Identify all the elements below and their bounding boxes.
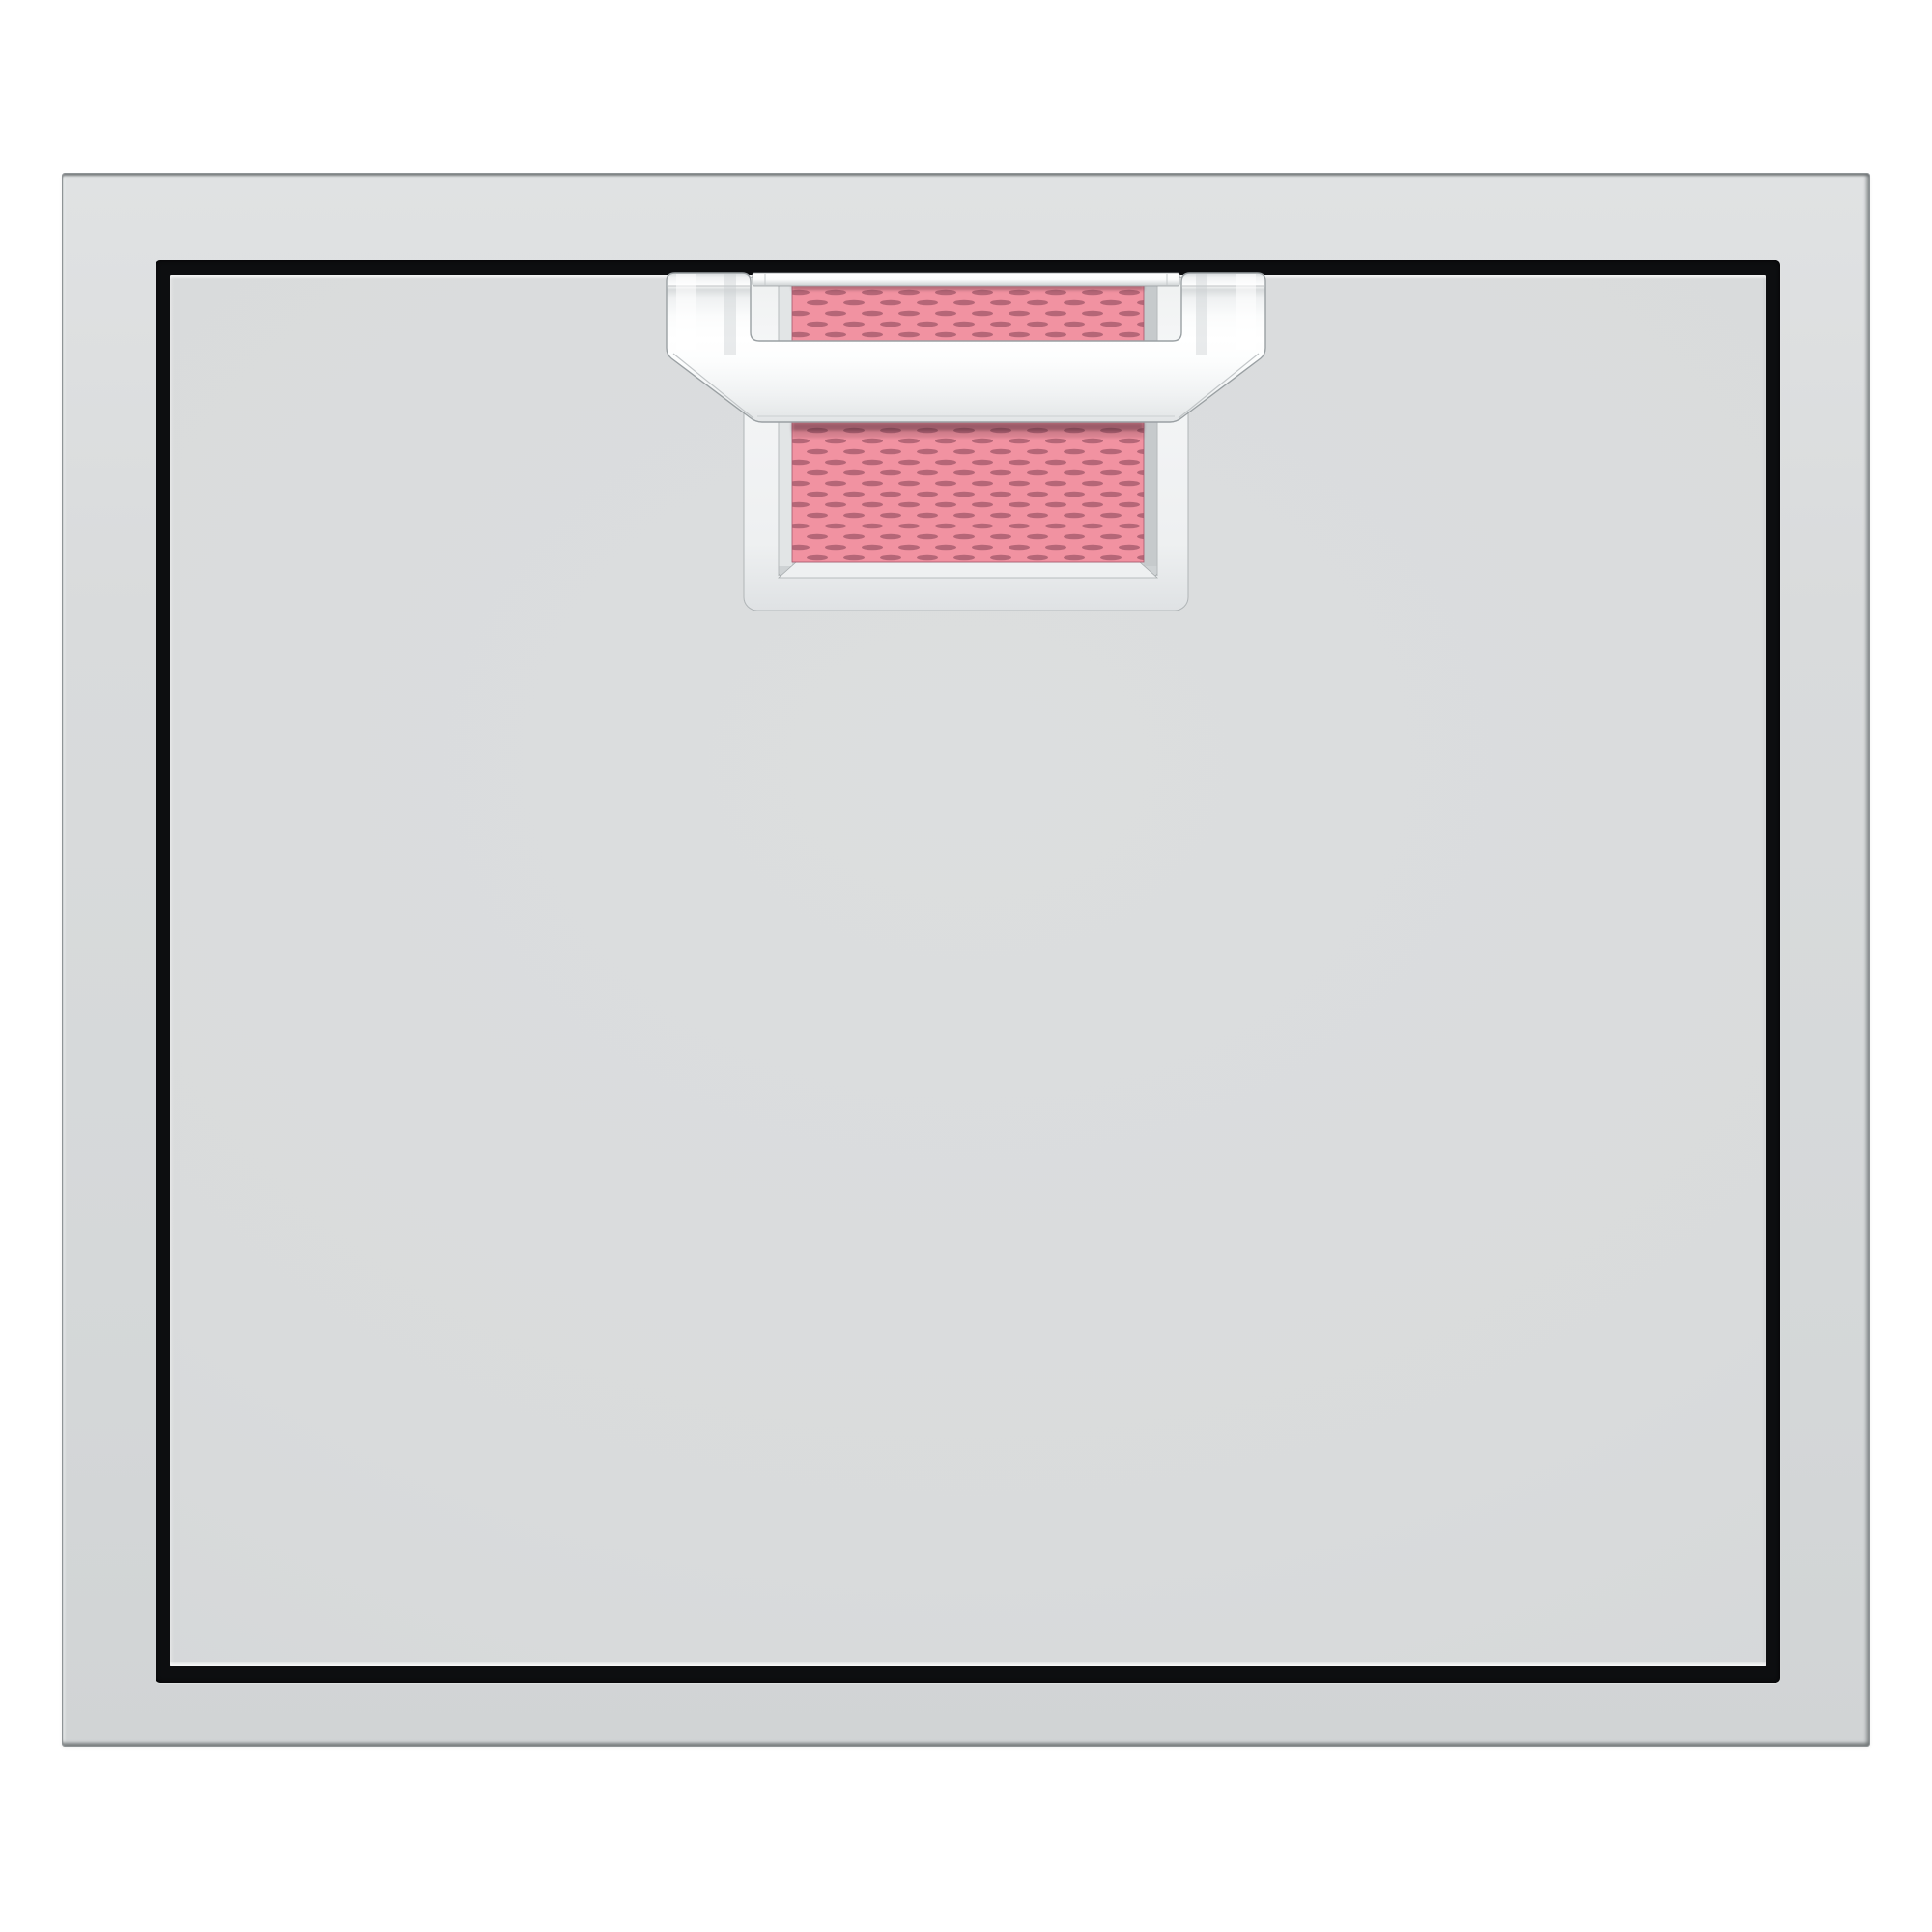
bezel-bevel-bottom [779, 562, 1157, 578]
accent-insert-upper [792, 284, 1144, 341]
handle-tab-highlight-left [676, 274, 696, 350]
accent-insert-lower-shadow [792, 422, 1144, 431]
handle-top-rail [753, 273, 1179, 286]
bezel-bevel-right [1144, 286, 1157, 566]
accent-insert-lower [792, 422, 1144, 562]
handle-tab-highlight-right [1236, 274, 1256, 350]
door-bottom-edge-highlight [170, 1662, 1766, 1666]
accent-insert-lower-shadow-soft [792, 431, 1144, 438]
product-photo-stage [0, 0, 1932, 1932]
handle-tab-shade-left [724, 274, 736, 355]
handle-assembly [599, 232, 1333, 638]
bezel-bevel-left [779, 286, 792, 566]
handle-tab-shade-right [1196, 274, 1207, 355]
